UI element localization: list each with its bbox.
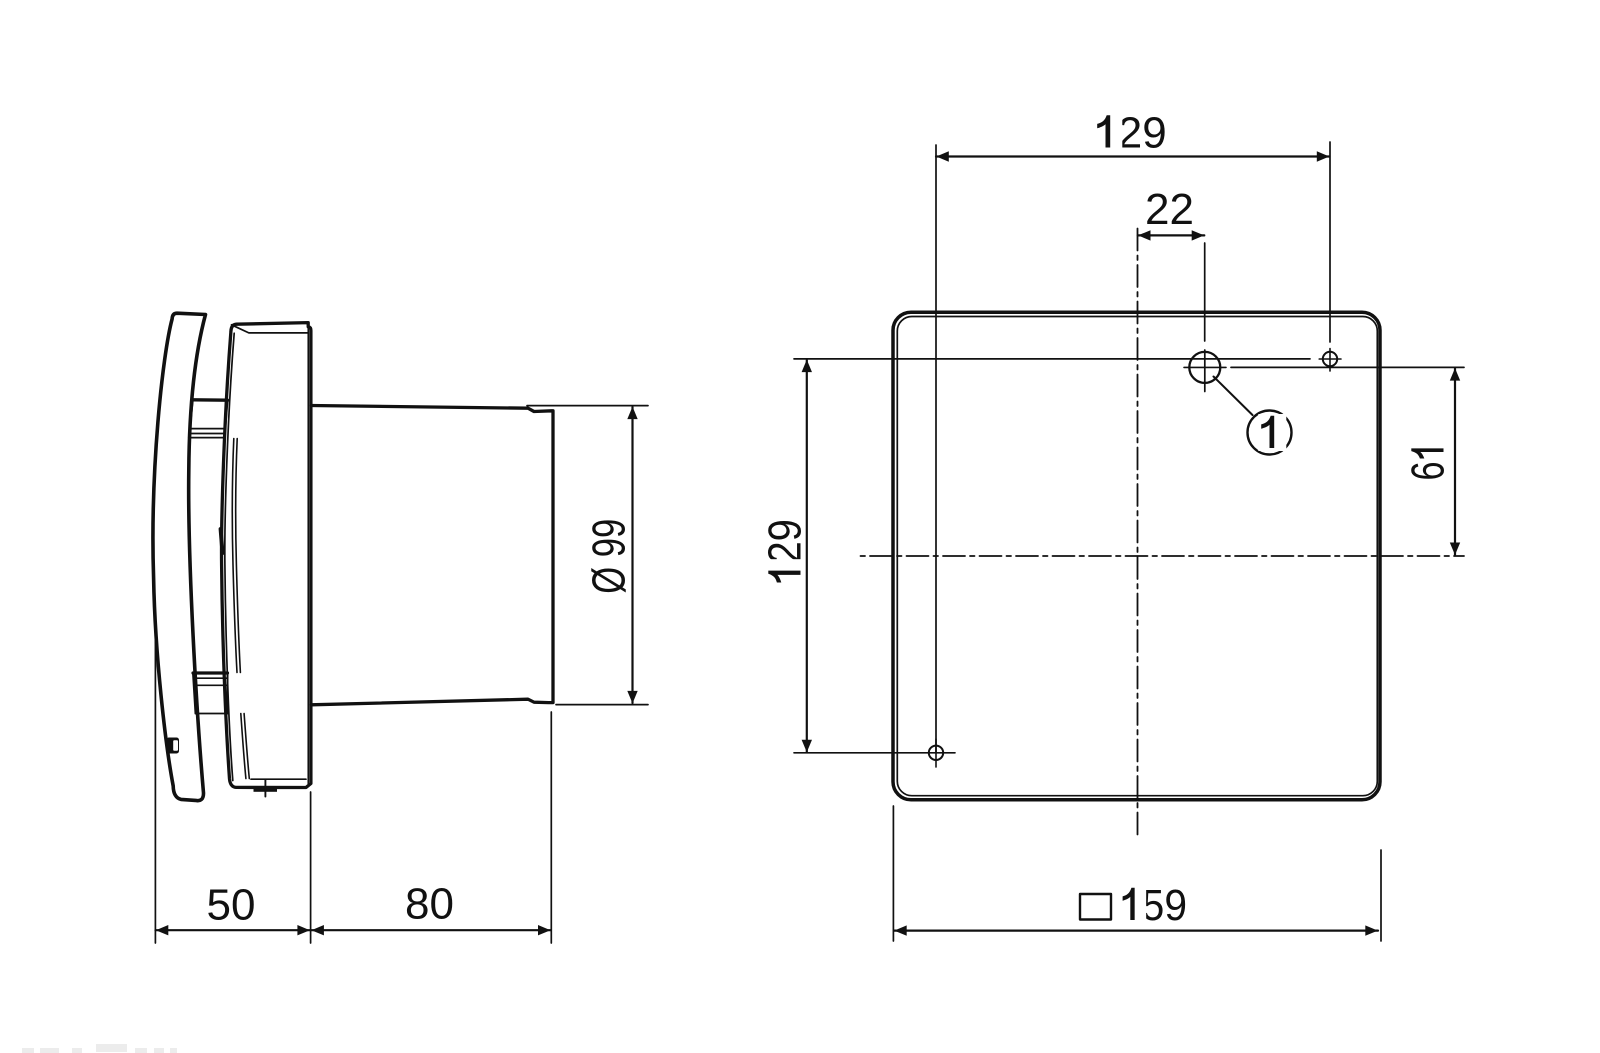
svg-text:Ø 99: Ø 99: [583, 519, 635, 594]
svg-text:22: 22: [1145, 185, 1194, 234]
svg-text:80: 80: [405, 880, 454, 929]
svg-text:50: 50: [207, 881, 256, 930]
